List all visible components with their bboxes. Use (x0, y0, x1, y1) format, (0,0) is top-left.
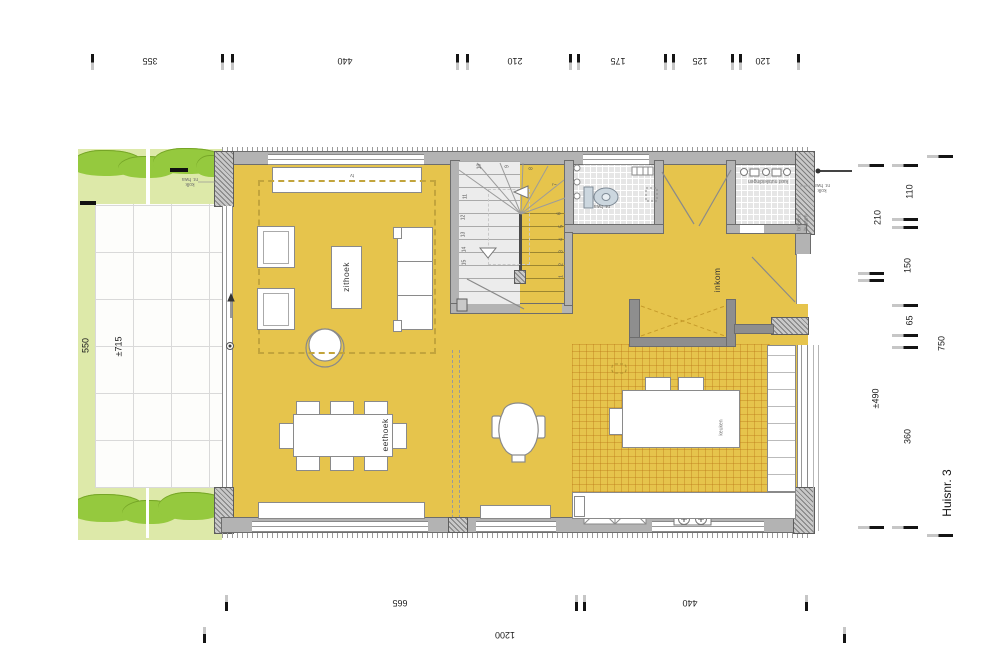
tv-label: tv (330, 172, 374, 177)
dim-tick (892, 526, 918, 529)
drain-l2: nr. hwa (182, 176, 198, 182)
dim-label: 355 (133, 55, 167, 66)
dim-tick (892, 226, 918, 229)
armchair (257, 288, 295, 330)
dim-tick (892, 346, 918, 349)
plan-linework (0, 0, 1000, 667)
counter-shelf (574, 496, 585, 517)
drain-annotation: kolk nr. hwa (168, 176, 212, 186)
dim-tick (225, 595, 228, 611)
door-post (457, 299, 467, 311)
dim-label: 440 (328, 55, 362, 66)
dim-tick (231, 54, 234, 70)
closet-cross (641, 306, 725, 336)
dim-label: 150 (903, 249, 914, 283)
meter-icons (741, 169, 791, 177)
island-label: keuken (720, 406, 725, 450)
dim-tick (577, 54, 580, 70)
dim-label: 360 (903, 420, 914, 454)
dining-chair (392, 423, 407, 449)
dim-tick (575, 595, 578, 611)
dining-chair (296, 455, 320, 471)
island-chair (645, 377, 671, 391)
dim-label: 110 (905, 175, 916, 209)
kitchen-light (612, 364, 626, 373)
dim-tick (858, 526, 884, 529)
dim-tick (221, 54, 224, 70)
drain-dot (816, 169, 821, 174)
drain-annotation: nr. hwa (580, 203, 624, 208)
dim-tick (203, 627, 206, 643)
dim-label: 125 (683, 55, 717, 66)
dim-label: 120 (746, 55, 780, 66)
dim-label: 665 (383, 597, 417, 608)
sideboard (480, 505, 551, 519)
dim-tick (843, 627, 846, 643)
drain-l2: nr. hwa (594, 203, 610, 209)
dim-tick (927, 534, 953, 537)
armchair (257, 226, 295, 268)
dim-label: ±715 (114, 330, 125, 364)
island-chair (678, 377, 704, 391)
dim-label: 210 (498, 55, 532, 66)
drain-l2: nr. hwa (814, 182, 830, 188)
page-title: Huisnr. 3 (940, 458, 954, 528)
wc-radiator-icon (632, 167, 653, 175)
wc-drain (646, 188, 657, 201)
dim-label: 750 (937, 327, 948, 361)
mailbox-label-2: bussen (805, 201, 810, 245)
dim-tick (456, 54, 459, 70)
dim-tick (583, 595, 586, 611)
dim-tick (805, 595, 808, 611)
dim-tick (892, 164, 918, 167)
dim-label: ±490 (871, 382, 882, 416)
room-label-living: zithoek (341, 247, 351, 307)
dim-label: 175 (601, 55, 635, 66)
dim-tick (731, 54, 734, 70)
wc-wall-hooks (574, 165, 580, 199)
room-label-dining: eethoek (380, 405, 390, 465)
floor-plan: zithoek tv eethoek inkom keuken kast nut… (0, 0, 1000, 667)
tall-cabinets (767, 345, 796, 492)
dining-chair (279, 423, 294, 449)
lounge-chair-icon (492, 403, 545, 462)
dim-tick (569, 54, 572, 70)
dim-label: 550 (81, 329, 92, 363)
dim-label: 65 (905, 304, 916, 338)
dim-label: 210 (873, 201, 884, 235)
dim-tick (858, 164, 884, 167)
stair-arrows (480, 186, 528, 258)
dim-tick (892, 218, 918, 221)
dim-tick (466, 54, 469, 70)
mailbox-label-1: brieven (798, 201, 803, 245)
facade-arrow-icon (227, 294, 235, 350)
island-chair (609, 408, 623, 435)
dim-tick (858, 272, 884, 275)
dim-tick (927, 155, 953, 158)
dim-label: 1200 (488, 629, 522, 640)
dim-tick (858, 279, 884, 282)
dim-tick (664, 54, 667, 70)
dim-tick (797, 54, 800, 70)
dim-tick (91, 54, 94, 70)
meter-closet-label: kast nutsleidingen (742, 178, 794, 183)
kitchen-counter (572, 492, 796, 519)
stair-winder-lines (459, 163, 565, 214)
dim-label: 440 (673, 597, 707, 608)
sideboard (258, 502, 425, 519)
dining-table (293, 414, 393, 457)
dim-tick (739, 54, 742, 70)
drain-annotation: kolk nr. hwa (800, 182, 844, 192)
sofa (397, 227, 433, 330)
dim-tick (672, 54, 675, 70)
dining-chair (330, 455, 354, 471)
room-label-entry: inkom (712, 250, 722, 310)
